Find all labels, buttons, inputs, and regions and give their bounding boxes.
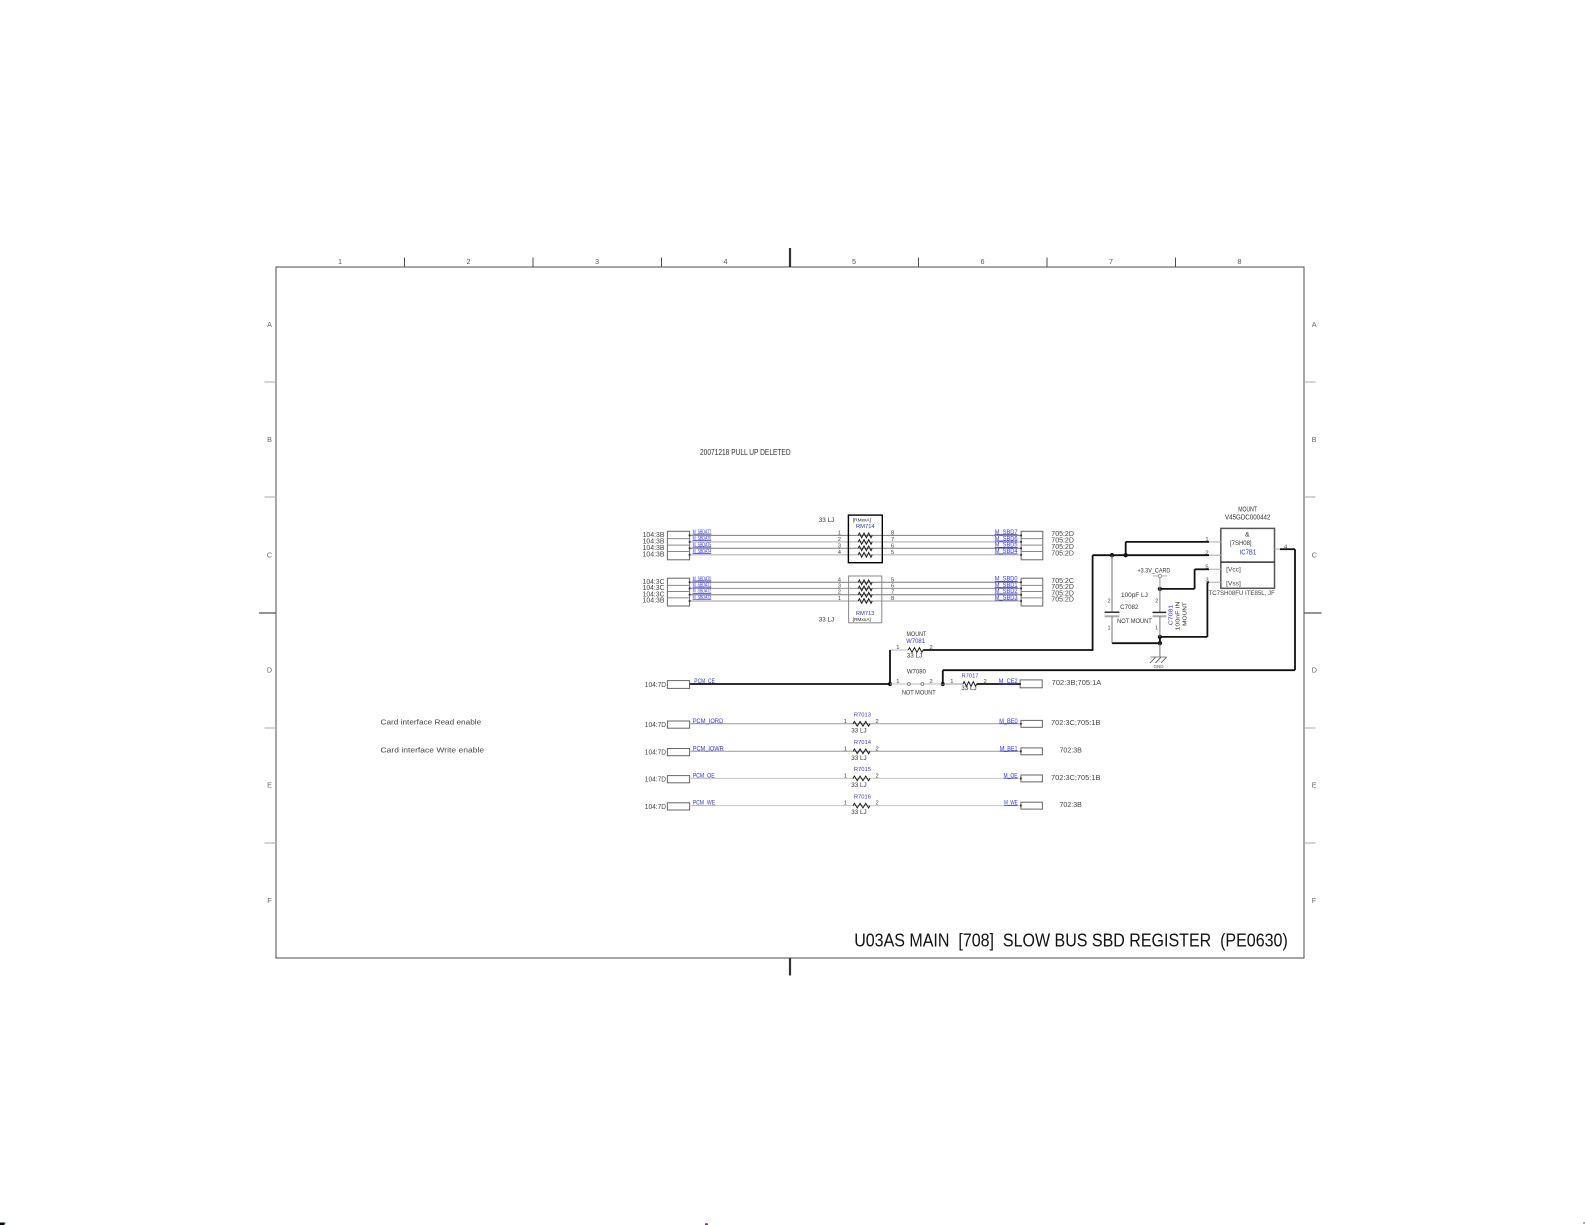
svg-text:GND: GND: [1154, 664, 1165, 669]
svg-text:8: 8: [891, 530, 894, 536]
svg-text:5: 5: [891, 550, 894, 556]
svg-text:[Vss]: [Vss]: [1226, 580, 1241, 587]
svg-text:Card interface Read enable: Card interface Read enable: [381, 718, 482, 727]
svg-text:V45GDC000442: V45GDC000442: [1225, 515, 1270, 522]
svg-text:W7081: W7081: [906, 639, 926, 645]
svg-text:33 LJ: 33 LJ: [819, 617, 834, 624]
svg-text:M_SBD3: M_SBD3: [995, 595, 1019, 601]
svg-text:+3.3V_CARD: +3.3V_CARD: [1137, 569, 1171, 575]
svg-text:7: 7: [891, 537, 894, 543]
svg-text:M_SBDAT3: M_SBDAT3: [693, 595, 712, 601]
svg-text:M_SBD4: M_SBD4: [995, 549, 1019, 555]
svg-text:M_SBDAT7: M_SBDAT7: [693, 529, 712, 535]
svg-text:5: 5: [852, 257, 856, 266]
svg-text:A: A: [267, 320, 272, 329]
svg-text:1: 1: [1155, 626, 1158, 632]
svg-text:[RMxxA]: [RMxxA]: [853, 517, 871, 523]
svg-text:M_SBDAT2: M_SBDAT2: [693, 589, 712, 595]
svg-text:MOUNT: MOUNT: [1238, 507, 1257, 514]
svg-text:33 LJ: 33 LJ: [851, 809, 866, 816]
svg-text:702:3B: 702:3B: [1060, 748, 1083, 755]
svg-text:1: 1: [896, 679, 899, 685]
svg-text:5: 5: [891, 577, 894, 583]
svg-text:2: 2: [838, 537, 841, 543]
svg-text:104:7D: 104:7D: [645, 722, 666, 729]
svg-text:6: 6: [891, 543, 894, 549]
svg-text:MOUNT: MOUNT: [907, 632, 927, 638]
svg-text:NOT MOUNT: NOT MOUNT: [902, 691, 936, 697]
svg-text:8: 8: [1238, 257, 1242, 266]
svg-text:20071218 PULL UP DELETED: 20071218 PULL UP DELETED: [700, 447, 791, 457]
svg-text:M_SBDAT4: M_SBDAT4: [693, 549, 712, 555]
svg-text:2: 2: [1155, 599, 1158, 605]
svg-text:33 LJ: 33 LJ: [851, 782, 866, 789]
svg-text:100pF LJ: 100pF LJ: [1121, 593, 1148, 599]
svg-text:705:2D: 705:2D: [1051, 597, 1074, 604]
svg-text:702:3B;705:1A: 702:3B;705:1A: [1052, 680, 1102, 687]
svg-text:M_SBD6: M_SBD6: [995, 536, 1019, 542]
svg-text:3: 3: [838, 583, 841, 589]
svg-text:2: 2: [1107, 599, 1110, 605]
svg-text:D: D: [1312, 666, 1317, 675]
svg-text:TC7SH08FU ITE85L, JF: TC7SH08FU ITE85L, JF: [1209, 590, 1275, 597]
svg-text:F: F: [267, 896, 272, 905]
svg-text:33 LJ: 33 LJ: [907, 653, 922, 660]
svg-text:M_SBD7: M_SBD7: [995, 530, 1019, 536]
svg-text:D: D: [267, 666, 272, 675]
svg-text:2: 2: [838, 590, 841, 596]
svg-text:[Vcc]: [Vcc]: [1226, 566, 1241, 573]
svg-text:E: E: [267, 781, 272, 790]
svg-text:705:2D: 705:2D: [1051, 551, 1074, 558]
svg-text:2: 2: [876, 801, 879, 807]
svg-text:B: B: [1312, 435, 1317, 444]
svg-text:C7082: C7082: [1120, 605, 1139, 611]
svg-text:M_SBDAT6: M_SBDAT6: [693, 536, 712, 542]
svg-text:M_SBDAT1: M_SBDAT1: [693, 582, 712, 588]
svg-text:C: C: [1312, 551, 1317, 560]
svg-text:B: B: [267, 435, 272, 444]
svg-text:6: 6: [981, 257, 985, 266]
svg-text:RM713: RM713: [856, 611, 875, 617]
svg-text:C: C: [267, 551, 272, 560]
svg-text:702:3C;705:1B: 702:3C;705:1B: [1051, 720, 1101, 727]
svg-text:[RMxxA]: [RMxxA]: [853, 617, 871, 623]
svg-text:1: 1: [844, 773, 847, 779]
svg-text:E: E: [1312, 781, 1317, 790]
svg-text:A: A: [1312, 320, 1317, 329]
svg-text:Card interface Write enable: Card interface Write enable: [381, 745, 485, 754]
svg-text:2: 2: [984, 679, 987, 685]
svg-text:2: 2: [467, 257, 471, 266]
svg-text:M_SBD2: M_SBD2: [995, 589, 1019, 595]
svg-text:2: 2: [876, 746, 879, 752]
svg-text:R7017: R7017: [961, 673, 978, 679]
svg-text:3: 3: [838, 543, 841, 549]
svg-text:M_SBDAT5: M_SBDAT5: [693, 542, 712, 548]
svg-text:RM714: RM714: [856, 524, 875, 530]
svg-text:F: F: [1312, 896, 1317, 905]
svg-text:1: 1: [1107, 626, 1110, 632]
svg-text:1: 1: [844, 746, 847, 752]
svg-text:7: 7: [891, 590, 894, 596]
svg-text:M_SBDAT0: M_SBDAT0: [693, 576, 712, 582]
svg-text:8: 8: [891, 596, 894, 602]
svg-text:104:7D: 104:7D: [645, 777, 666, 784]
svg-text:M_SBD1: M_SBD1: [995, 583, 1019, 589]
svg-text:R7016: R7016: [854, 794, 871, 800]
svg-text:702:3C;705:1B: 702:3C;705:1B: [1051, 775, 1101, 782]
svg-text:2: 2: [930, 679, 933, 685]
svg-text:1: 1: [844, 719, 847, 725]
svg-text:M_SBD0: M_SBD0: [995, 577, 1019, 583]
svg-text:IC7B1: IC7B1: [1240, 550, 1257, 557]
svg-text:[7SH08]: [7SH08]: [1230, 540, 1252, 547]
svg-text:&: &: [1245, 531, 1250, 538]
svg-text:2: 2: [876, 719, 879, 725]
svg-text:1: 1: [838, 596, 841, 602]
svg-text:3: 3: [595, 257, 599, 266]
svg-text:100nF IN: 100nF IN: [1176, 601, 1182, 630]
svg-text:NOT MOUNT: NOT MOUNT: [1117, 619, 1152, 625]
svg-text:33 LJ: 33 LJ: [961, 685, 976, 692]
svg-text:104:7D: 104:7D: [645, 804, 666, 811]
svg-text:4: 4: [724, 257, 728, 266]
svg-text:33 LJ: 33 LJ: [851, 755, 866, 762]
svg-text:1: 1: [950, 679, 953, 685]
svg-text:104:3B: 104:3B: [643, 598, 665, 605]
svg-text:1: 1: [838, 530, 841, 536]
svg-text:2: 2: [930, 645, 933, 651]
svg-text:R7013: R7013: [854, 713, 871, 719]
svg-text:2: 2: [876, 773, 879, 779]
svg-text:33 LJ: 33 LJ: [819, 517, 834, 524]
svg-text:1: 1: [896, 645, 899, 651]
svg-text:U03AS MAIN [708] SLOW BUS SB: U03AS MAIN [708] SLOW BUS SBD REGISTER (…: [854, 931, 1288, 951]
svg-text:M_SBD5: M_SBD5: [995, 543, 1019, 549]
svg-text:104:3B: 104:3B: [643, 551, 665, 558]
svg-text:104:7D: 104:7D: [645, 750, 666, 757]
svg-text:702:3B: 702:3B: [1060, 802, 1083, 809]
svg-text:1: 1: [844, 801, 847, 807]
svg-text:MOUNT: MOUNT: [1183, 601, 1189, 626]
svg-text:33 LJ: 33 LJ: [851, 727, 866, 734]
svg-text:R7015: R7015: [854, 767, 871, 773]
svg-text:C7081: C7081: [1169, 605, 1175, 626]
svg-text:W7080: W7080: [907, 669, 927, 675]
svg-text:1: 1: [338, 257, 342, 266]
svg-text:7: 7: [1109, 257, 1113, 266]
svg-text:R7014: R7014: [854, 740, 872, 746]
svg-text:104:7D: 104:7D: [645, 682, 666, 689]
svg-text:6: 6: [891, 583, 894, 589]
